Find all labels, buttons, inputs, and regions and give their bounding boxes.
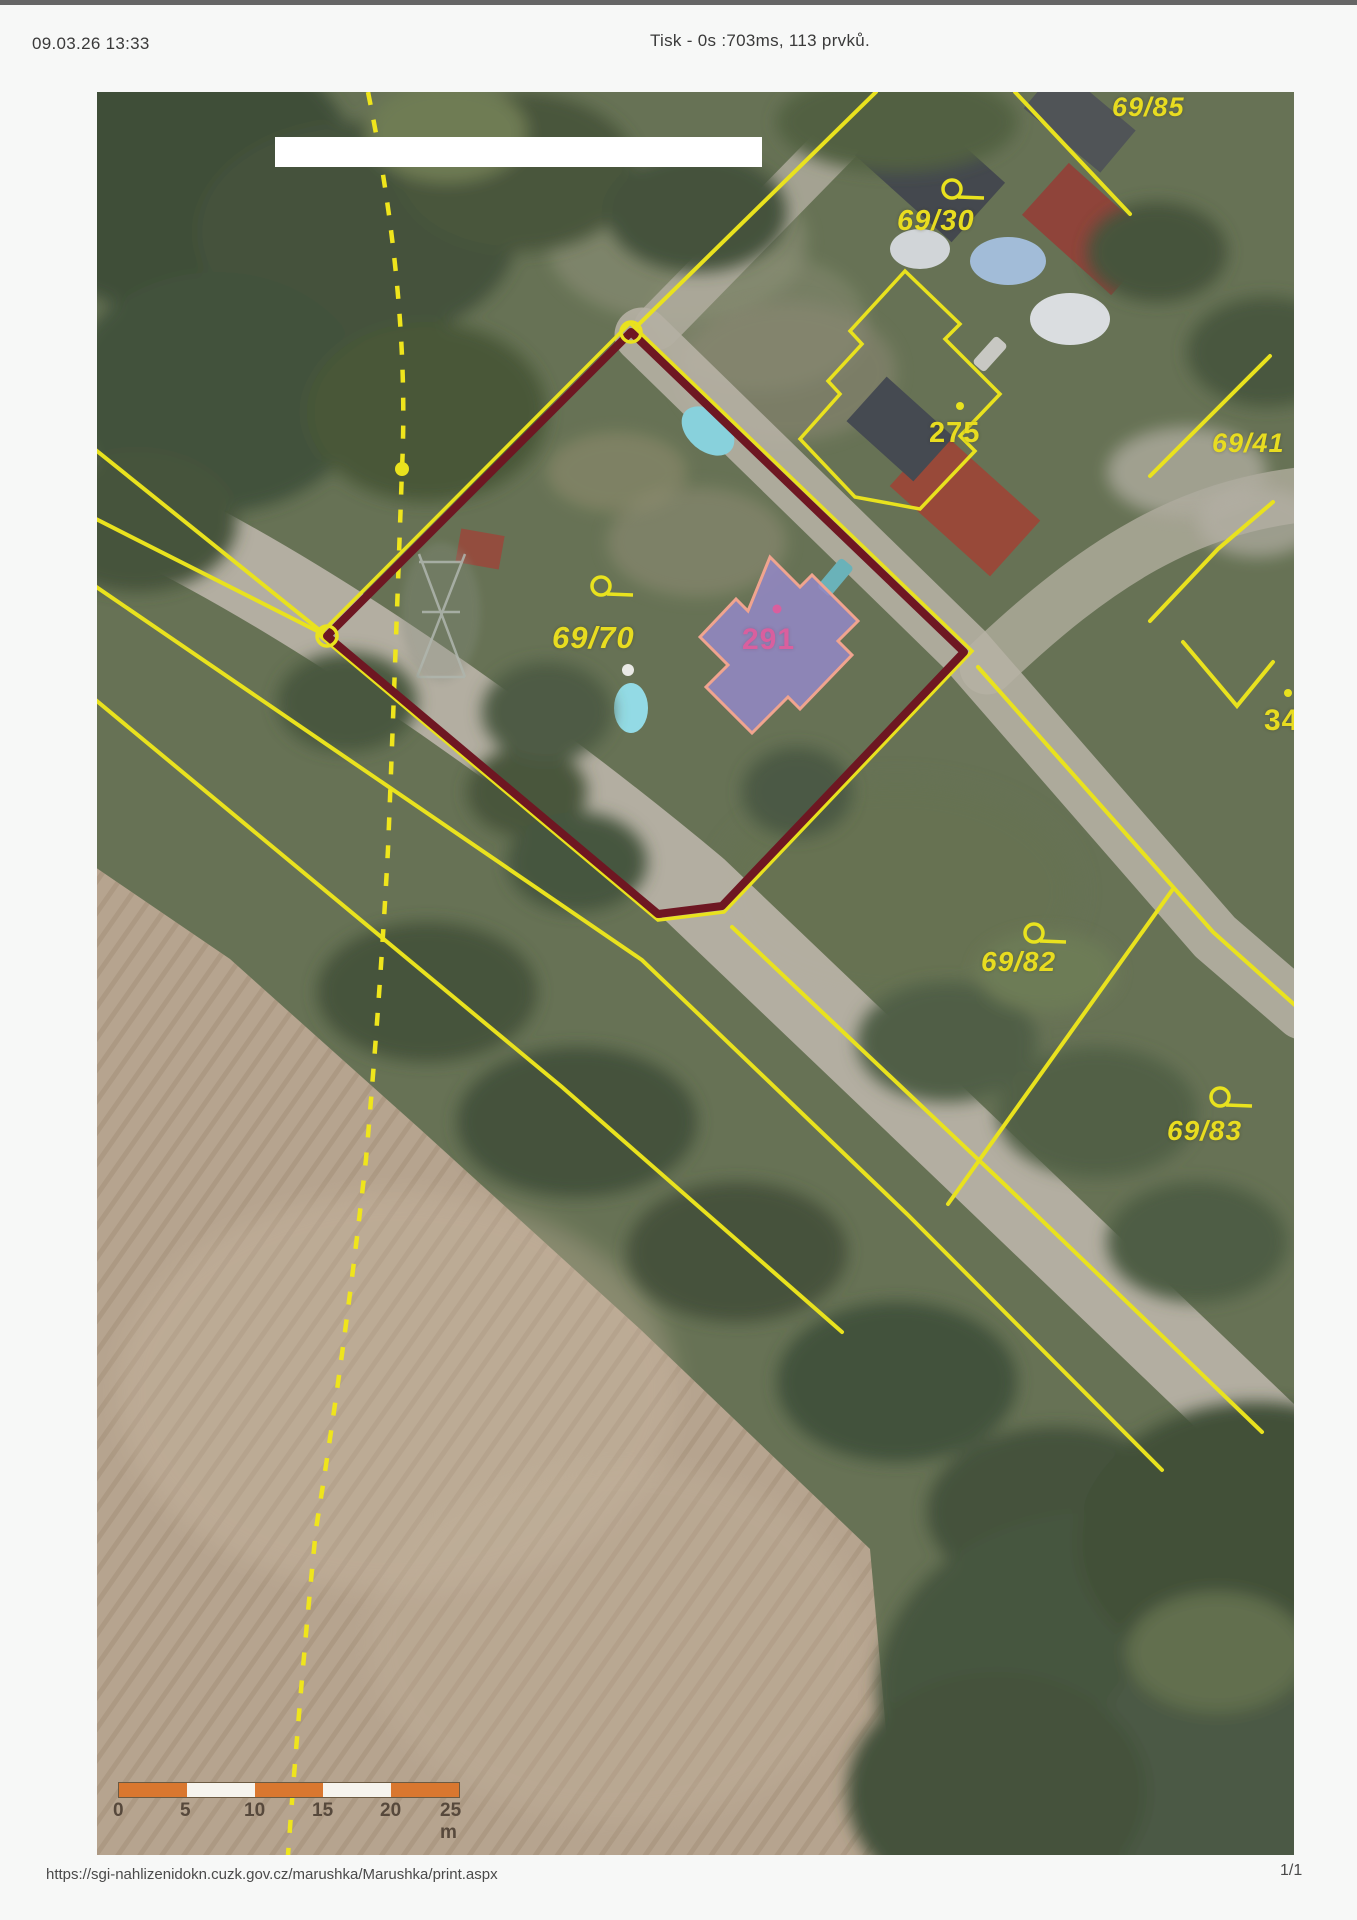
scale-bar: 0 5 10 15 20 25 m [118, 1782, 460, 1798]
scale-bar-segment [119, 1783, 187, 1797]
parcel-label-69-83: 69/83 [1167, 1115, 1242, 1147]
scale-tick: 25 m [440, 1800, 461, 1844]
parcel-label-69-41: 69/41 [1212, 428, 1285, 459]
scan-artifact-edge [0, 0, 1357, 5]
boundary-point-icon [395, 462, 409, 476]
scale-bar-segment [255, 1783, 323, 1797]
building-label-275: 275 [929, 417, 980, 450]
header-print-status: Tisk - 0s :703ms, 113 prvků. [650, 31, 870, 51]
print-page: 09.03.26 13:33 Tisk - 0s :703ms, 113 prv… [0, 0, 1357, 1920]
building-label-291: 291 [742, 623, 795, 657]
parcel-label-69-85: 69/85 [1112, 92, 1185, 123]
scale-tick: 5 [180, 1800, 191, 1822]
building-point-icon [773, 605, 782, 614]
scale-tick: 0 [113, 1800, 124, 1822]
scale-bar-segment [323, 1783, 391, 1797]
building-point-icon [1284, 689, 1292, 697]
footer-page-indicator: 1/1 [1280, 1862, 1302, 1880]
parcel-label-69-70: 69/70 [552, 620, 635, 656]
building-point-icon [956, 402, 964, 410]
header-datetime: 09.03.26 13:33 [32, 34, 150, 54]
redacted-white-bar [275, 137, 762, 167]
aerial-map-image: 69/85 69/30 275 69/41 69/70 291 34 69/82… [97, 92, 1294, 1855]
parcel-label-69-82: 69/82 [981, 946, 1056, 978]
scale-tick: 15 [312, 1800, 333, 1822]
scale-bar-segment [187, 1783, 255, 1797]
footer-url: https://sgi-nahlizenidokn.cuzk.gov.cz/ma… [46, 1866, 498, 1883]
scale-tick: 20 [380, 1800, 401, 1822]
scale-bar-segment [391, 1783, 459, 1797]
building-label-34: 34 [1264, 704, 1294, 738]
scale-tick: 10 [244, 1800, 265, 1822]
map-canvas [97, 92, 1294, 1855]
parcel-label-69-30: 69/30 [897, 205, 975, 238]
